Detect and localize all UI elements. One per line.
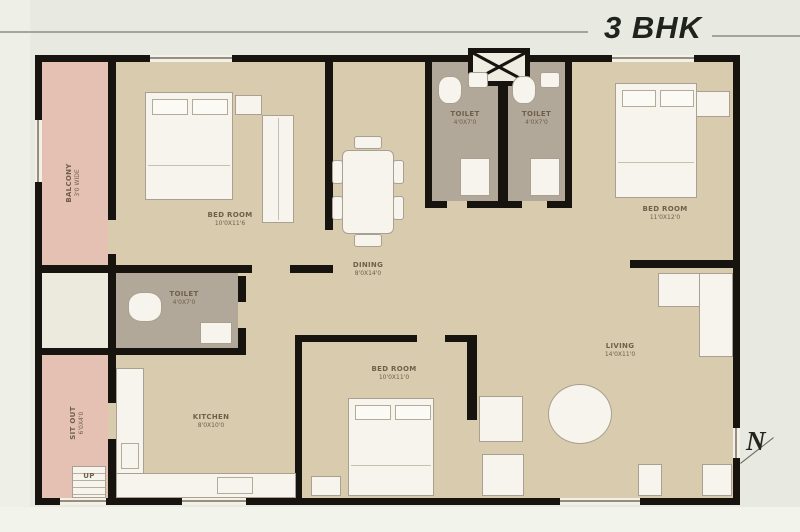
wall-segment bbox=[108, 62, 116, 220]
wardrobe-divider bbox=[278, 118, 279, 220]
room-label-kitchen: KITCHEN 8'0X10'0 bbox=[173, 411, 249, 431]
shower-tray bbox=[200, 322, 232, 344]
side-table bbox=[479, 396, 523, 442]
room-label-bedroom-bottom: BED ROOM 10'0X11'0 bbox=[342, 362, 446, 384]
room-dims: 4'0X7'0 bbox=[454, 119, 477, 127]
washbasin bbox=[468, 72, 488, 88]
sink bbox=[121, 443, 139, 469]
window bbox=[182, 498, 246, 505]
bed bbox=[348, 398, 434, 496]
room-dims: 6'0X4'0 bbox=[78, 412, 86, 435]
pillow bbox=[622, 90, 656, 107]
room-label-living: LIVING 14'0X11'0 bbox=[587, 338, 653, 362]
wall-segment bbox=[238, 276, 246, 302]
compass-north-label: N bbox=[746, 426, 766, 457]
room-name: SIT OUT bbox=[69, 406, 78, 439]
nightstand bbox=[311, 476, 341, 496]
shower-tray bbox=[460, 158, 490, 196]
pillow bbox=[192, 99, 228, 115]
wall-segment bbox=[42, 348, 246, 355]
dining-chair bbox=[332, 160, 343, 184]
dining-chair bbox=[354, 136, 382, 149]
room-dims: 3'0 WIDE bbox=[74, 169, 82, 196]
room-dims: 11'0X12'0 bbox=[650, 214, 680, 222]
dining-chair bbox=[332, 196, 343, 220]
round-table bbox=[548, 384, 612, 444]
bed bbox=[615, 83, 697, 198]
room-name: BED ROOM bbox=[371, 365, 416, 374]
stove bbox=[217, 477, 253, 494]
wall-segment bbox=[467, 342, 477, 420]
room-name: UP bbox=[83, 472, 94, 481]
wall-segment bbox=[290, 265, 333, 273]
room-dims: 10'0X11'6 bbox=[215, 220, 245, 228]
window bbox=[733, 428, 740, 458]
room-name: TOILET bbox=[450, 110, 479, 119]
armchair bbox=[482, 454, 524, 496]
dining-chair bbox=[393, 160, 404, 184]
room-utility bbox=[42, 273, 108, 348]
title-rule-right bbox=[712, 35, 800, 37]
window bbox=[560, 498, 640, 505]
room-name: KITCHEN bbox=[193, 413, 230, 422]
room-label-balcony: BALCONY 3'0 WIDE bbox=[51, 153, 95, 213]
pillow bbox=[660, 90, 694, 107]
bed-fold-line bbox=[618, 162, 694, 163]
window bbox=[150, 55, 232, 62]
room-label-bedroom-top-left: BED ROOM 10'0X11'6 bbox=[178, 208, 282, 230]
toilet-wc bbox=[512, 76, 536, 104]
room-name: DINING bbox=[353, 261, 383, 270]
wall-segment bbox=[425, 62, 432, 208]
nightstand bbox=[235, 95, 262, 115]
room-name: BALCONY bbox=[65, 163, 74, 202]
room-label-dining: DINING 8'0X14'0 bbox=[330, 258, 406, 280]
window bbox=[60, 498, 106, 505]
wall-segment bbox=[108, 273, 116, 348]
pillow bbox=[152, 99, 188, 115]
room-dims: 4'0X7'0 bbox=[173, 299, 196, 307]
room-name: LIVING bbox=[606, 342, 635, 351]
kitchen-counter bbox=[116, 473, 296, 498]
window bbox=[612, 55, 694, 62]
room-name: TOILET bbox=[169, 290, 198, 299]
room-name: TOILET bbox=[522, 110, 551, 119]
wall-segment bbox=[630, 260, 733, 268]
page-bottom-margin bbox=[0, 507, 800, 532]
room-label-toilet-top-right: TOILET 4'0X7'0 bbox=[508, 108, 565, 128]
wall-segment bbox=[547, 201, 572, 208]
room-dims: 10'0X11'0 bbox=[379, 374, 409, 382]
page-left-margin bbox=[0, 0, 30, 532]
wardrobe bbox=[262, 115, 294, 223]
dining-chair bbox=[393, 196, 404, 220]
wall-segment bbox=[295, 342, 302, 498]
wall-segment bbox=[42, 265, 252, 273]
room-dims: 8'0X14'0 bbox=[355, 270, 382, 278]
bed-fold-line bbox=[351, 465, 431, 466]
room-dims: 4'0X7'0 bbox=[525, 119, 548, 127]
wall-segment bbox=[108, 439, 116, 498]
wall-segment bbox=[425, 201, 447, 208]
wall-segment bbox=[108, 355, 116, 403]
room-label-bedroom-right: BED ROOM 11'0X12'0 bbox=[617, 202, 713, 224]
wardrobe bbox=[696, 91, 730, 117]
toilet-wc bbox=[438, 76, 462, 104]
bed bbox=[145, 92, 233, 200]
wall-segment bbox=[565, 62, 572, 208]
sofa bbox=[699, 273, 733, 357]
wall-segment bbox=[467, 201, 522, 208]
bed-fold-line bbox=[148, 165, 230, 166]
room-dims: 8'0X10'0 bbox=[198, 422, 225, 430]
room-dims: 14'0X11'0 bbox=[605, 351, 635, 359]
shower-tray bbox=[530, 158, 560, 196]
wall-segment bbox=[295, 335, 417, 342]
tv-unit bbox=[638, 464, 662, 496]
plan-title: 3 BHK bbox=[588, 10, 718, 46]
floor-plan: BALCONY 3'0 WIDE BED ROOM 10'0X11'6 DINI… bbox=[35, 55, 740, 505]
tv-unit bbox=[702, 464, 732, 496]
room-name: BED ROOM bbox=[207, 211, 252, 220]
room-name: BED ROOM bbox=[642, 205, 687, 214]
washbasin bbox=[540, 72, 560, 88]
room-label-toilet-middle: TOILET 4'0X7'0 bbox=[152, 288, 216, 308]
dining-table bbox=[342, 150, 394, 234]
room-label-sit-out: SIT OUT 6'0X4'0 bbox=[55, 393, 99, 453]
wall-segment bbox=[445, 335, 477, 342]
pillow bbox=[355, 405, 391, 420]
room-label-toilet-top-left: TOILET 4'0X7'0 bbox=[432, 108, 498, 128]
dining-chair bbox=[354, 234, 382, 247]
window bbox=[35, 120, 42, 182]
title-rule-left bbox=[0, 31, 588, 33]
up-label: UP bbox=[72, 470, 106, 482]
pillow bbox=[395, 405, 431, 420]
